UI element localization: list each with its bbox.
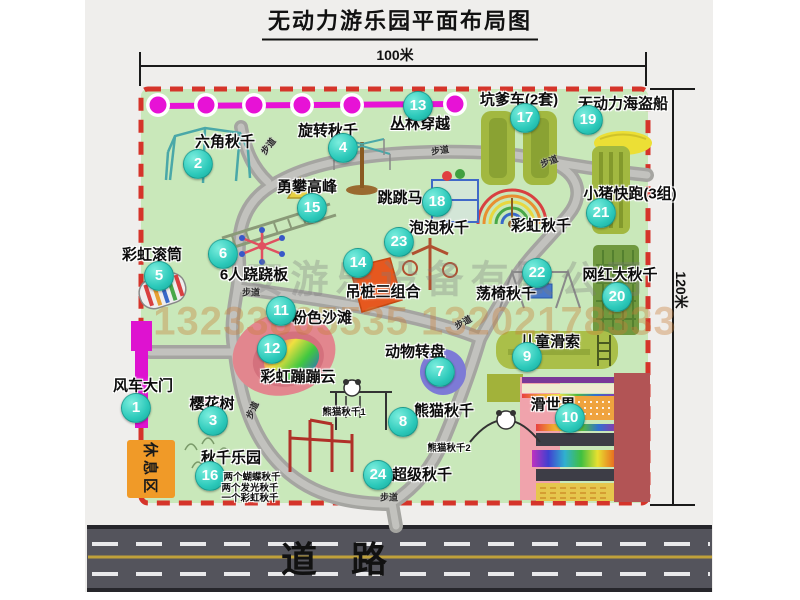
attraction-label-11: 粉色沙滩 <box>292 307 352 328</box>
attraction-label-14: 吊桩三组合 <box>345 281 420 302</box>
rest-area-label: 休息区 <box>141 442 162 496</box>
page-title: 无动力游乐园平面布局图 <box>262 4 538 41</box>
extra-label-2: 熊猫秋千2 <box>427 440 470 454</box>
footpath-label-6: 步道 <box>380 491 398 504</box>
footpath-label-1: 步道 <box>430 142 450 157</box>
width-dimension-label: 100米 <box>376 45 413 65</box>
attraction-badge-4: 4 <box>328 133 358 163</box>
attraction-badge-6: 6 <box>208 239 238 269</box>
attraction-badge-22: 22 <box>522 258 552 288</box>
attraction-badge-23: 23 <box>384 227 414 257</box>
attraction-badge-12: 12 <box>257 334 287 364</box>
footpath-label-3: 步道 <box>242 286 260 299</box>
attraction-label-12: 彩虹蹦蹦云 <box>260 366 335 387</box>
attraction-badge-15: 15 <box>297 193 327 223</box>
attraction-badge-21: 21 <box>586 198 616 228</box>
attraction-label-22: 荡椅秋千 <box>476 283 536 304</box>
attraction-badge-11: 11 <box>266 296 296 326</box>
road-label: 道 路 <box>281 531 399 583</box>
attraction-badge-9: 9 <box>512 342 542 372</box>
watermark-phone: 13233805535 13202178333 <box>153 300 677 345</box>
attraction-badge-13: 13 <box>403 91 433 121</box>
attraction-badge-10: 10 <box>555 403 585 433</box>
extra-label-0: 彩虹秋千 <box>511 215 571 236</box>
attraction-badge-5: 5 <box>144 261 174 291</box>
attraction-badge-1: 1 <box>121 393 151 423</box>
attraction-label-8: 熊猫秋千 <box>414 400 474 421</box>
attraction-label-1: 风车大门 <box>113 375 173 396</box>
attraction-badge-2: 2 <box>183 149 213 179</box>
attraction-label-23: 泡泡秋千 <box>409 217 469 238</box>
attraction-badge-3: 3 <box>198 406 228 436</box>
attraction-label-18: 跳跳马 <box>377 187 422 208</box>
extra-label-5: 一个彩虹秋千 <box>221 490 278 504</box>
road <box>87 525 712 592</box>
park-layout-map: 无动力游乐园平面布局图 100米 120米 安游乐设备有限公司 13233805… <box>0 0 800 600</box>
attraction-badge-24: 24 <box>363 460 393 490</box>
attraction-label-2: 六角秋千 <box>195 131 255 152</box>
attraction-badge-19: 19 <box>573 105 603 135</box>
attraction-badge-20: 20 <box>602 282 632 312</box>
attraction-label-24: 超级秋千 <box>392 464 452 485</box>
attraction-badge-14: 14 <box>343 248 373 278</box>
attraction-badge-7: 7 <box>425 357 455 387</box>
attraction-badge-18: 18 <box>422 187 452 217</box>
attraction-badge-17: 17 <box>510 103 540 133</box>
extra-label-1: 熊猫秋千1 <box>322 404 365 418</box>
attraction-badge-8: 8 <box>388 407 418 437</box>
